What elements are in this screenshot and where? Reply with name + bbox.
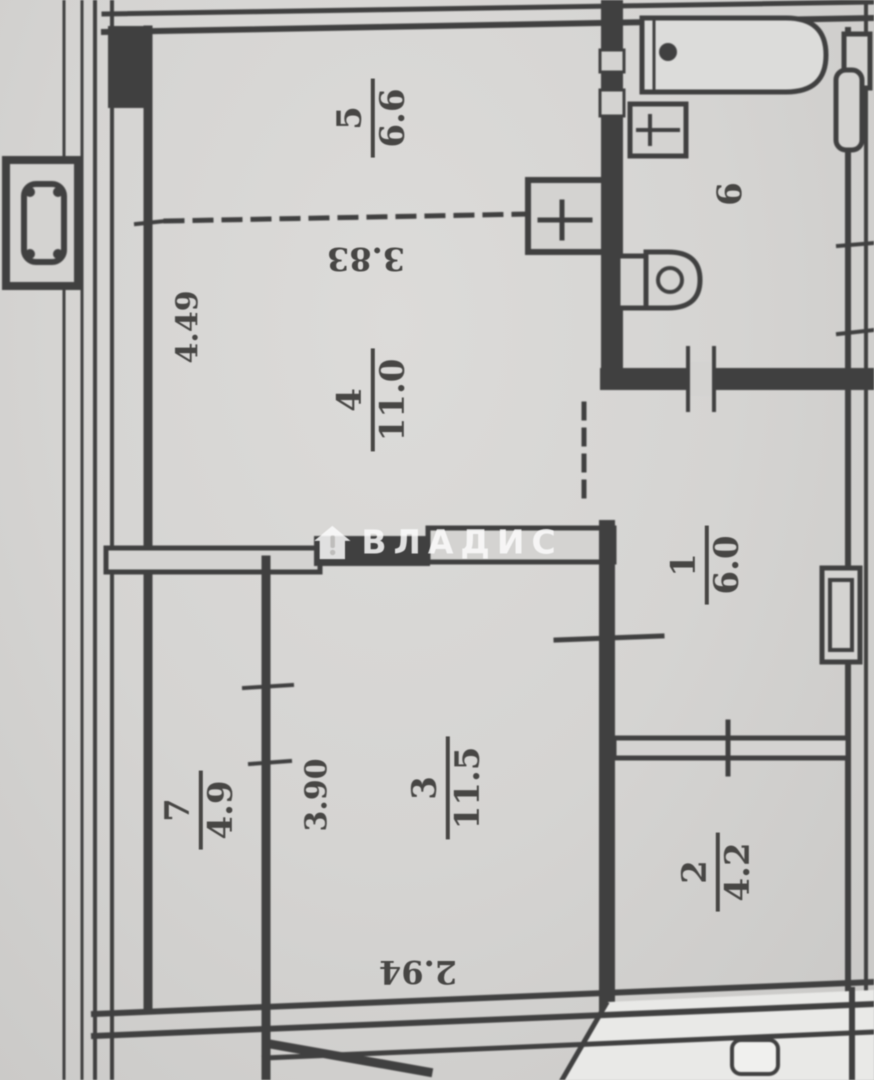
room-2-number: 2 <box>678 854 716 890</box>
floor-plan: 5 6.6 4 11.0 6 1 6.0 3 11.5 7 4.9 2 4.2 … <box>0 0 874 1080</box>
room-2-label: 2 4.2 <box>678 832 756 911</box>
room-5-area: 6.6 <box>371 78 412 157</box>
room-3-number: 3 <box>408 770 446 806</box>
watermark-brand-text: ВЛАДИС <box>361 523 562 562</box>
room-1-area: 6.0 <box>705 525 746 604</box>
room-5-label: 5 6.6 <box>333 78 411 157</box>
room-1-number: 1 <box>667 547 705 583</box>
dimension-value: 3.90 <box>301 758 333 831</box>
dimension-left-height: 4.49 <box>172 290 204 363</box>
dimension-value: 4.49 <box>172 290 204 363</box>
room-7-number: 7 <box>161 792 199 828</box>
house-icon <box>313 524 351 560</box>
room-7-area: 4.9 <box>199 770 240 849</box>
dimension-value: 3.83 <box>327 241 405 275</box>
room-1-label: 1 6.0 <box>667 525 745 604</box>
room-7-label: 7 4.9 <box>161 770 239 849</box>
room-5-number: 5 <box>333 100 371 136</box>
label-layer: 5 6.6 4 11.0 6 1 6.0 3 11.5 7 4.9 2 4.2 … <box>0 0 874 1080</box>
room-4-label: 4 11.0 <box>333 349 411 452</box>
watermark: ВЛАДИС <box>313 523 562 562</box>
room-6-number: 6 <box>713 182 749 206</box>
dimension-room3-height: 3.90 <box>301 758 333 831</box>
dimension-value: 2.94 <box>379 954 457 988</box>
room-2-area: 4.2 <box>716 832 757 911</box>
room-3-area: 11.5 <box>446 737 487 840</box>
dimension-room3-width: 2.94 <box>379 954 457 988</box>
room-6-label: 6 <box>713 182 749 206</box>
room-4-number: 4 <box>333 382 371 418</box>
room-4-area: 11.0 <box>371 349 412 452</box>
room-3-label: 3 11.5 <box>408 737 486 840</box>
dimension-room5-width: 3.83 <box>327 241 405 275</box>
